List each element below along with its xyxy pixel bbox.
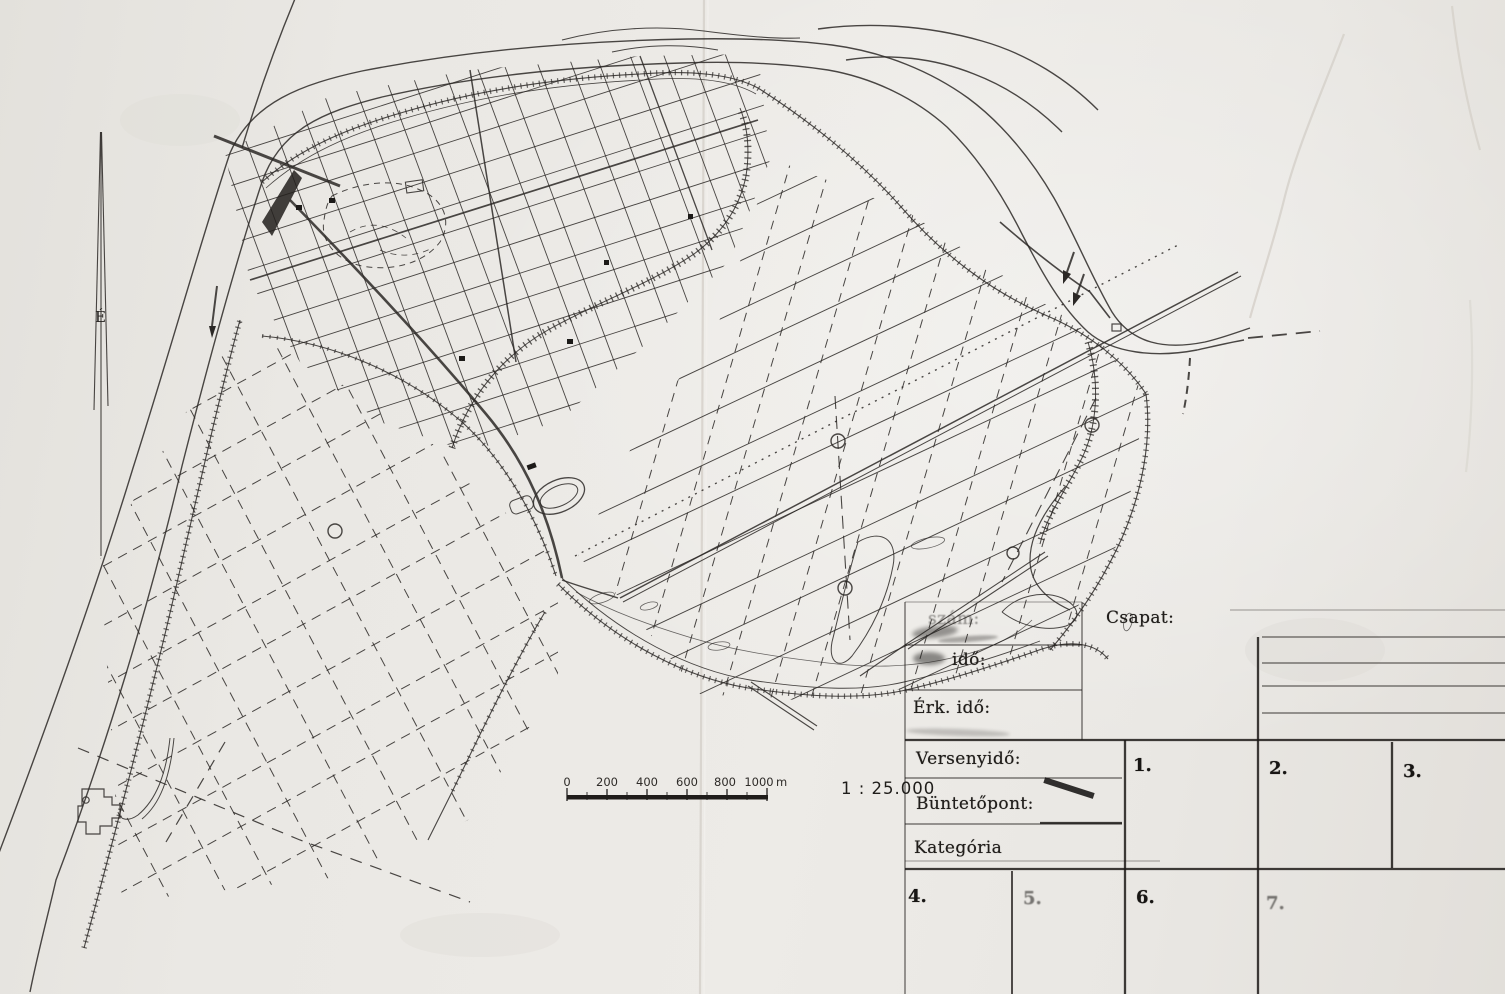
field-start-time-label: idő: — [952, 652, 986, 669]
bridge-ramp — [262, 170, 302, 236]
checkpoint-cell-2: 2. — [1269, 760, 1288, 778]
main-roads — [78, 56, 1241, 902]
field-category-label: Kategória — [914, 840, 1002, 857]
checkpoint-cell-3: 3. — [1403, 763, 1422, 781]
field-team-label: Csapat: — [1106, 610, 1174, 627]
north-arrow — [94, 132, 108, 556]
city-street-grid — [0, 0, 1505, 994]
scale-bar — [567, 788, 768, 801]
scanned-map-page: É 0 200 400 600 800 1000 m 1 : 25.000 sz… — [0, 0, 1505, 994]
field-grid-east — [0, 0, 1505, 994]
ink-layer — [0, 0, 1505, 994]
ferry-house-symbol — [1112, 324, 1121, 331]
checkpoint-cell-5: 5. — [1023, 890, 1042, 908]
pond — [508, 494, 534, 515]
scale-tick-0: 0 — [547, 777, 587, 789]
ink-smudge — [913, 652, 945, 665]
north-label: É — [95, 310, 107, 325]
checkpoint-cell-7: 7. — [1266, 895, 1285, 913]
checkpoint-cell-1: 1. — [1133, 757, 1152, 775]
checkpoint-cell-4: 4. — [908, 888, 927, 906]
field-grid-southwest — [0, 0, 1505, 994]
scale-tick-200: 200 — [587, 777, 627, 789]
field-race-time-label: Versenyidő: — [916, 751, 1021, 768]
scale-tick-1000: 1000 — [739, 777, 779, 789]
field-arrival-time-label: Érk. idő: — [913, 700, 991, 717]
field-penalty-label: Büntetőpont: — [916, 796, 1034, 813]
river-flow-arrows — [209, 252, 1084, 338]
checkpoint-cell-6: 6. — [1136, 889, 1155, 907]
checkpoint-circles — [328, 418, 1099, 595]
park-building — [405, 180, 423, 193]
scale-tick-400: 400 — [627, 777, 667, 789]
scale-tick-600: 600 — [667, 777, 707, 789]
scale-unit: m — [776, 777, 787, 789]
map-linework — [0, 0, 1505, 994]
